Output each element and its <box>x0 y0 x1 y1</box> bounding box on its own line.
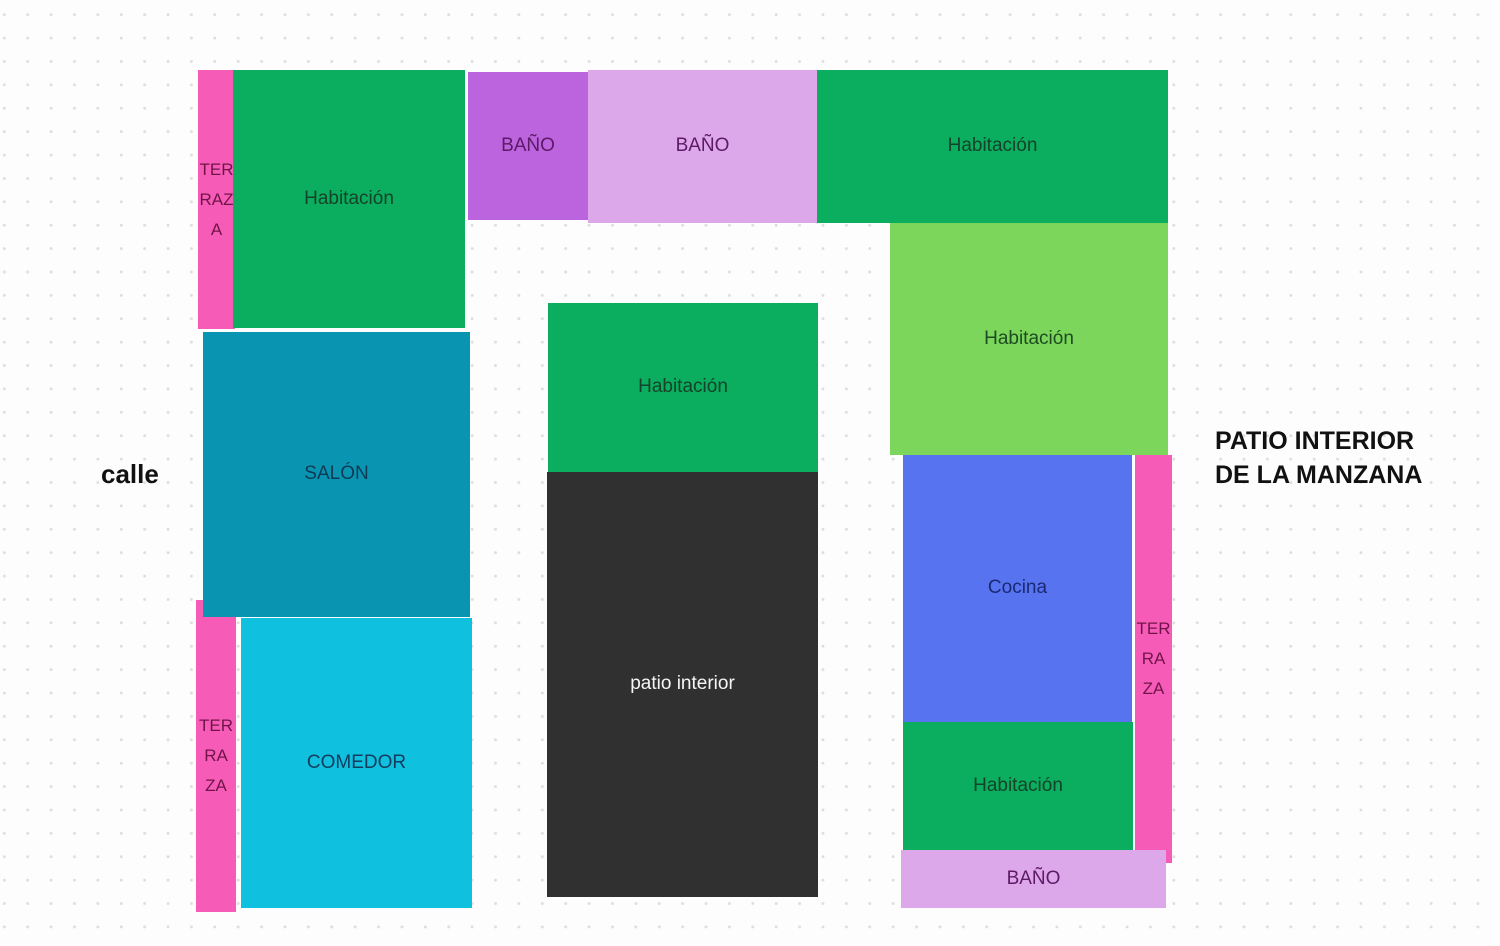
room-inner-patio[interactable]: patio interior <box>547 472 818 897</box>
room-label-bathroom-top-light: BAÑO <box>676 135 730 158</box>
room-dining-room[interactable]: COMEDOR <box>241 618 472 908</box>
room-label-bedroom-top-right: Habitación <box>948 135 1038 158</box>
label-line: A <box>211 215 222 245</box>
label-line: TER <box>1137 614 1171 644</box>
room-label-terrace-right: TER RA ZA <box>1137 614 1171 704</box>
room-bedroom-top-right[interactable]: Habitación <box>817 70 1168 223</box>
room-label-bathroom-top-purple: BAÑO <box>501 135 555 158</box>
label-line: ZA <box>1143 674 1165 704</box>
room-label-bathroom-bottom: BAÑO <box>1007 868 1061 891</box>
room-label-kitchen: Cocina <box>988 577 1047 600</box>
room-label-bedroom-top-left: Habitación <box>304 188 394 211</box>
room-label-inner-patio: patio interior <box>630 673 735 696</box>
room-terrace-bottom-left[interactable]: TER RA ZA <box>196 600 236 912</box>
room-bedroom-bottom-right[interactable]: Habitación <box>903 722 1133 850</box>
room-bathroom-bottom[interactable]: BAÑO <box>901 850 1166 908</box>
label-line: ZA <box>205 771 227 801</box>
room-terrace-right[interactable]: TER RA ZA <box>1135 455 1172 863</box>
room-label-bedroom-bottom-right: Habitación <box>973 775 1063 798</box>
block-patio-annotation-line2: DE LA MANZANA <box>1215 458 1422 492</box>
room-bedroom-middle[interactable]: Habitación <box>548 303 818 472</box>
label-line: TER <box>200 155 234 185</box>
room-kitchen[interactable]: Cocina <box>903 455 1132 722</box>
room-label-terrace-top-left: TER RAZ A <box>200 155 234 245</box>
label-line: RAZ <box>200 185 234 215</box>
label-line: RA <box>1142 644 1166 674</box>
room-label-bedroom-middle: Habitación <box>638 376 728 399</box>
room-label-dining-room: COMEDOR <box>307 752 406 775</box>
room-bedroom-top-left[interactable]: Habitación <box>233 70 465 328</box>
label-line: TER <box>199 711 233 741</box>
room-bedroom-right[interactable]: Habitación <box>890 223 1168 455</box>
block-patio-annotation-line1: PATIO INTERIOR <box>1215 424 1422 458</box>
floor-plan-canvas: TER RAZ A Habitación BAÑO BAÑO Habitació… <box>0 0 1500 946</box>
room-living-room[interactable]: SALÓN <box>203 332 470 617</box>
room-label-bedroom-right: Habitación <box>984 328 1074 351</box>
room-label-terrace-bottom-left: TER RA ZA <box>199 711 233 801</box>
room-bathroom-top-purple[interactable]: BAÑO <box>468 72 588 220</box>
block-patio-annotation: PATIO INTERIOR DE LA MANZANA <box>1215 424 1422 492</box>
room-terrace-top-left[interactable]: TER RAZ A <box>198 70 235 329</box>
room-bathroom-top-light[interactable]: BAÑO <box>588 70 817 223</box>
label-line: RA <box>204 741 228 771</box>
room-label-living-room: SALÓN <box>304 463 368 486</box>
street-annotation: calle <box>101 459 159 490</box>
